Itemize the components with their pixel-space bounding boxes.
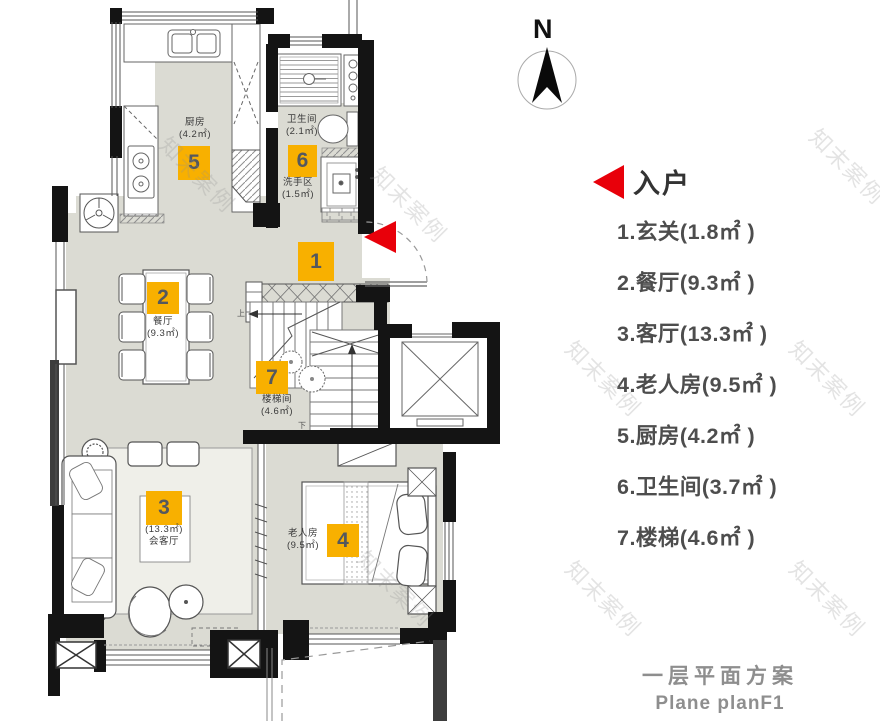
floorplan-page: 1 2 3 4 5 6 7 厨房 (4.2㎡) 卫生间 (2.1㎡) 洗手区 (… <box>0 0 880 721</box>
room-badge-stairs: 7 <box>256 361 288 394</box>
stairs-down-label: 下 <box>298 420 306 431</box>
stairs-label: 楼梯间 (4.6㎡) <box>242 394 312 419</box>
legend-item-2: 2.餐厅(9.3㎡ ) <box>617 266 777 297</box>
side-cabinet <box>56 290 76 364</box>
room-badge-kitchen: 5 <box>178 146 210 180</box>
north-compass-icon <box>518 47 576 109</box>
room-badge-living: 3 <box>146 491 182 525</box>
north-label: N <box>533 14 553 45</box>
plan-title-en: Plane planF1 <box>598 693 842 715</box>
legend-item-3: 3.客厅(13.3㎡ ) <box>617 317 777 348</box>
plan-title-zh: 一层平面方案 <box>598 660 842 690</box>
washarea-label: 洗手区 (1.5㎡) <box>263 177 333 202</box>
entry-arrow-legend-icon <box>593 165 624 199</box>
living-label: (13.3㎡) 会客厅 <box>129 524 199 549</box>
entry-marker-label: 入户 <box>633 162 691 201</box>
dining-label: 餐厅 (9.3㎡) <box>128 316 198 341</box>
stairs-up-label: 上 <box>237 308 245 319</box>
legend-item-6: 6.卫生间(3.7㎡ ) <box>617 470 777 501</box>
elevator-shaft <box>390 334 487 428</box>
entry-marker: 入户 <box>593 162 691 201</box>
room-legend: 1.玄关(1.8㎡ ) 2.餐厅(9.3㎡ ) 3.客厅(13.3㎡ ) 4.老… <box>617 215 777 572</box>
legend-item-5: 5.厨房(4.2㎡ ) <box>617 419 777 450</box>
room-badge-dining: 2 <box>147 282 179 314</box>
legend-item-4: 4.老人房(9.5㎡ ) <box>617 368 777 399</box>
bedroom-label: 老人房 (9.5㎡) <box>268 528 338 553</box>
room-badge-bath: 6 <box>288 145 317 177</box>
plan-title: 一层平面方案 Plane planF1 <box>598 660 842 715</box>
legend-item-7: 7.楼梯(4.6㎡ ) <box>617 521 777 552</box>
bath-label: 卫生间 (2.1㎡) <box>267 114 337 139</box>
legend-item-1: 1.玄关(1.8㎡ ) <box>617 215 777 246</box>
room-badge-entry: 1 <box>298 242 334 281</box>
kitchen-label: 厨房 (4.2㎡) <box>160 117 230 142</box>
